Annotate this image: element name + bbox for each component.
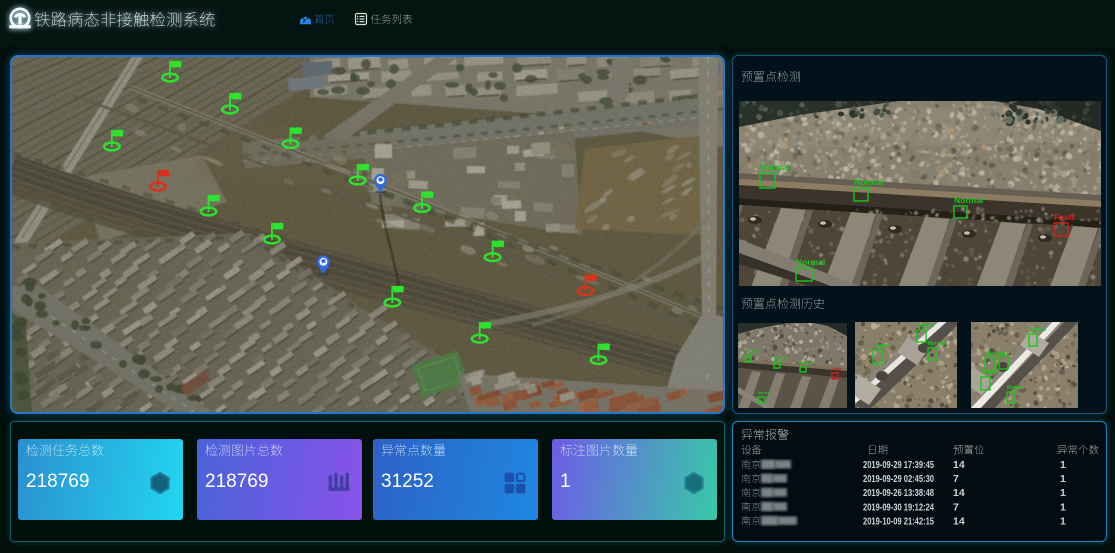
svg-text:2019-09-30 19:12:24: 2019-09-30 19:12:24 bbox=[863, 501, 934, 513]
svg-text:Normal: Normal bbox=[1029, 327, 1047, 333]
svg-text:14: 14 bbox=[953, 515, 965, 527]
svg-text:Normal: Normal bbox=[745, 349, 759, 354]
svg-text:14: 14 bbox=[953, 459, 965, 471]
svg-text:2019-09-26 13:38:48: 2019-09-26 13:38:48 bbox=[863, 487, 934, 499]
svg-text:Normal: Normal bbox=[760, 162, 789, 172]
svg-text:1: 1 bbox=[1060, 501, 1066, 513]
svg-text:Normal: Normal bbox=[873, 343, 891, 349]
svg-text:2019-09-29 02:45:30: 2019-09-29 02:45:30 bbox=[863, 473, 934, 485]
svg-text:Normal: Normal bbox=[917, 323, 935, 329]
svg-text:2019-09-29 17:39:45: 2019-09-29 17:39:45 bbox=[863, 459, 934, 471]
svg-text:Normal: Normal bbox=[758, 390, 772, 395]
svg-text:Normal: Normal bbox=[800, 360, 814, 365]
svg-text:Normal: Normal bbox=[774, 355, 788, 360]
svg-text:7: 7 bbox=[953, 501, 959, 513]
svg-text:Normal: Normal bbox=[796, 257, 825, 267]
svg-text:14: 14 bbox=[953, 487, 965, 499]
svg-text:Normal: Normal bbox=[854, 177, 883, 187]
svg-text:Normal: Normal bbox=[1007, 385, 1025, 391]
svg-text:1: 1 bbox=[1060, 487, 1066, 499]
svg-text:Fault: Fault bbox=[1054, 212, 1074, 222]
svg-text:Normal: Normal bbox=[954, 195, 983, 205]
svg-text:1: 1 bbox=[1060, 515, 1066, 527]
svg-text:Fault: Fault bbox=[832, 366, 842, 371]
svg-text:1: 1 bbox=[1060, 459, 1066, 471]
svg-text:7: 7 bbox=[953, 473, 959, 485]
svg-text:1: 1 bbox=[1060, 473, 1066, 485]
svg-text:Normal: Normal bbox=[928, 341, 946, 347]
svg-text:2019-10-09 21:42:15: 2019-10-09 21:42:15 bbox=[863, 515, 934, 527]
